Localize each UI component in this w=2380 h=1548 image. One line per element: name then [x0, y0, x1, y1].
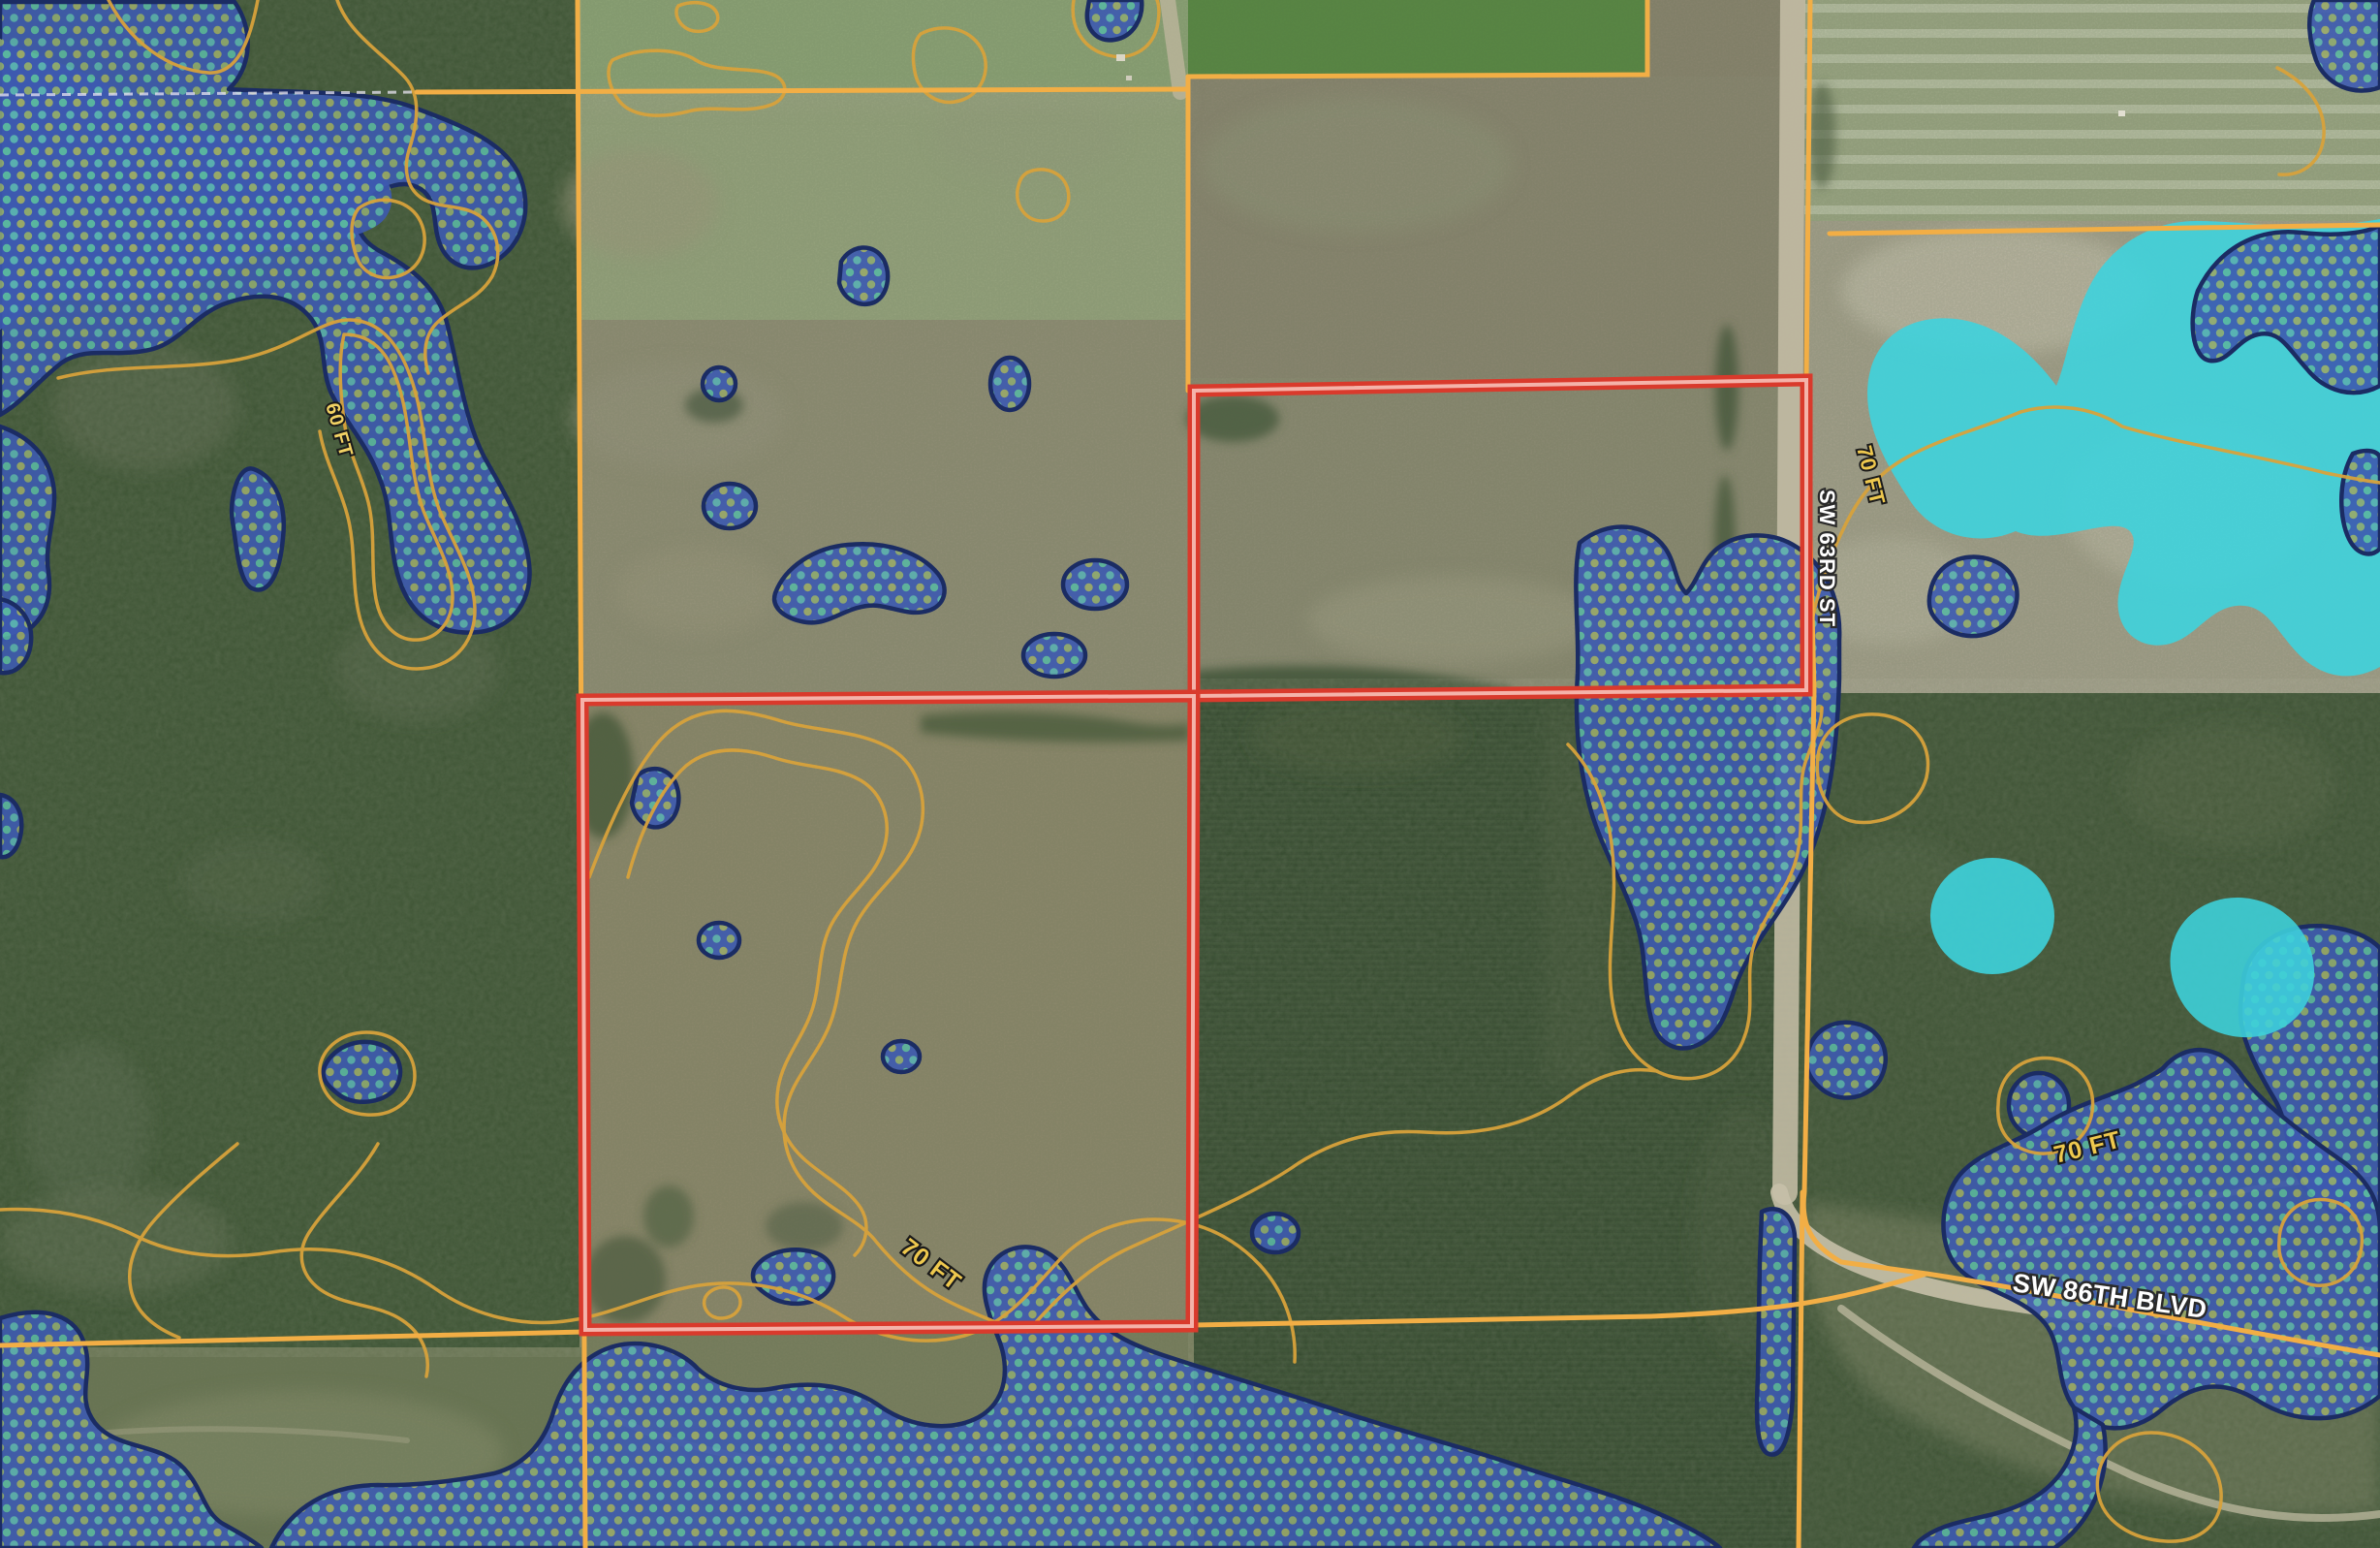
svg-text:SW 63RD ST: SW 63RD ST [1815, 490, 1839, 627]
